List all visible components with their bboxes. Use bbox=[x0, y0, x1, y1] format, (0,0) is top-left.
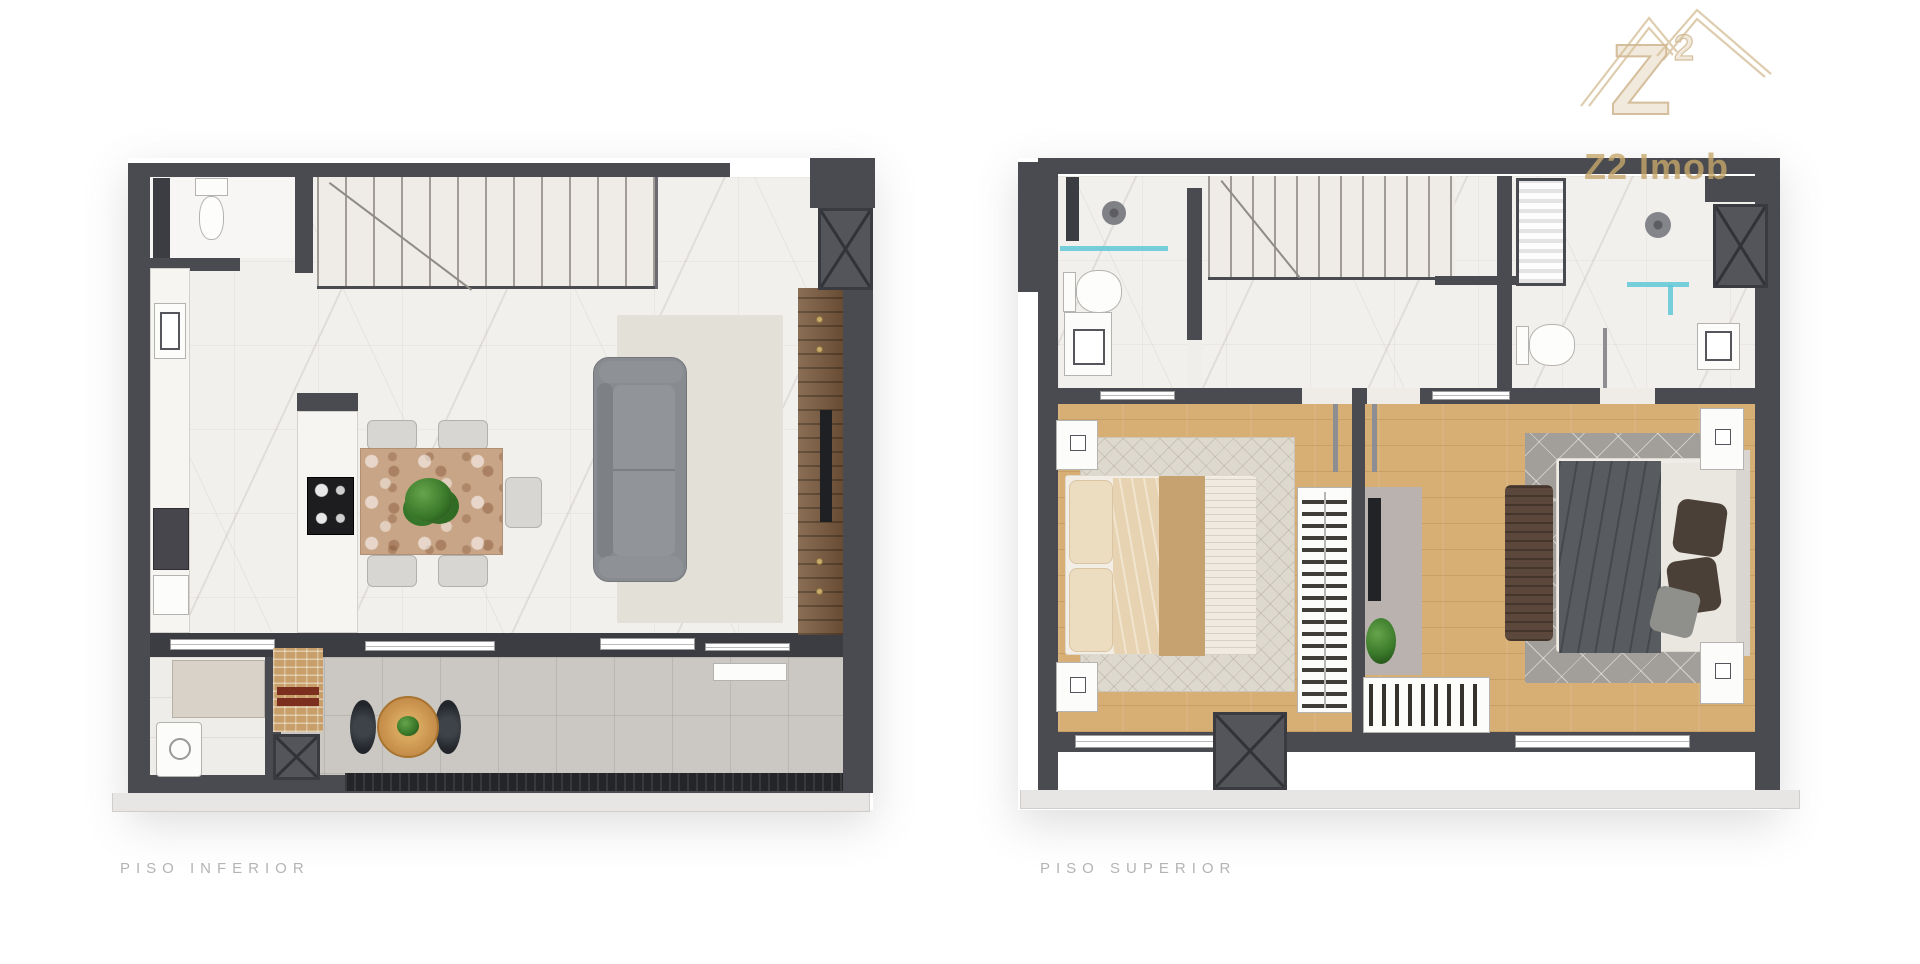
upper-left-jog-wall bbox=[1018, 162, 1040, 292]
logo-monogram: Z bbox=[1610, 40, 1671, 120]
floor-plans-image: PISO INFERIOR bbox=[0, 0, 1920, 964]
pocket-door bbox=[1432, 391, 1510, 400]
shower-drain bbox=[1645, 212, 1671, 238]
bathroom-sink-counter bbox=[1697, 323, 1740, 370]
bathroom-sink-counter bbox=[1064, 312, 1112, 376]
bed2-bench bbox=[1505, 485, 1553, 641]
shaft-x-icon bbox=[1216, 715, 1284, 787]
dresser-contents bbox=[1369, 684, 1484, 726]
bath1-door-opening bbox=[1187, 340, 1202, 388]
bedroom2-window bbox=[1515, 735, 1690, 748]
bedroom1-window bbox=[1075, 735, 1215, 748]
bedroom2-door-opening bbox=[1367, 388, 1420, 404]
nightstand-lamp bbox=[1070, 677, 1086, 693]
watermark-logo: Z 2 Z2 Imob bbox=[1560, 0, 1820, 200]
logo-monogram-exponent: 2 bbox=[1674, 34, 1694, 63]
bath2-door-opening bbox=[1600, 388, 1655, 404]
bed1-runner bbox=[1159, 476, 1205, 656]
nightstand bbox=[1056, 662, 1098, 712]
bed2-duvet bbox=[1559, 461, 1661, 653]
bedroom2-plant bbox=[1366, 618, 1396, 664]
bedroom2-door-leaf bbox=[1372, 404, 1377, 472]
toilet-tank bbox=[1063, 272, 1076, 312]
shower-glass-partition bbox=[1627, 282, 1689, 287]
sink-basin bbox=[1073, 329, 1105, 365]
shower-glass-partition bbox=[1060, 246, 1168, 251]
bedroom1-door-leaf bbox=[1333, 404, 1338, 472]
bed1 bbox=[1065, 475, 1255, 655]
shaft-x-icon bbox=[1716, 207, 1765, 285]
shower-head bbox=[1102, 201, 1126, 225]
closet-rail bbox=[1324, 492, 1326, 708]
shower-column bbox=[1066, 177, 1079, 241]
nightstand-lamp bbox=[1715, 663, 1731, 679]
bed2 bbox=[1556, 458, 1740, 652]
sink-basin bbox=[1705, 331, 1732, 361]
duct-shaft bbox=[1713, 204, 1768, 288]
closet bbox=[1297, 487, 1352, 713]
tv-screen bbox=[1368, 498, 1381, 601]
nightstand bbox=[1700, 408, 1744, 470]
nightstand-lamp bbox=[1715, 429, 1731, 445]
logo-wordmark: Z2 Imob bbox=[1584, 146, 1729, 188]
nightstand bbox=[1700, 642, 1744, 704]
upper-left-wall bbox=[1038, 158, 1058, 790]
shower-glass-partition bbox=[1668, 285, 1673, 315]
bedroom1-door-opening bbox=[1302, 388, 1352, 404]
bed1-pillow bbox=[1069, 480, 1113, 564]
upper-slab-edge bbox=[1020, 790, 1800, 809]
nightstand bbox=[1056, 420, 1098, 470]
toilet-bowl bbox=[1529, 324, 1575, 366]
bath2-door-leaf bbox=[1603, 328, 1607, 388]
bed1-pillow bbox=[1069, 568, 1113, 652]
bed2-pillow bbox=[1671, 498, 1728, 558]
shoe-dresser bbox=[1363, 677, 1490, 733]
bath2-left-wall bbox=[1497, 176, 1512, 400]
bed1-blanket bbox=[1113, 478, 1159, 654]
bed1-quilt bbox=[1205, 477, 1256, 655]
shower-enclosure bbox=[1516, 178, 1566, 286]
duct-shaft bbox=[1213, 712, 1287, 790]
bed2-headboard bbox=[1736, 450, 1750, 656]
toilet-bowl bbox=[1076, 270, 1122, 313]
toilet-tank bbox=[1516, 326, 1529, 365]
staircase-upper bbox=[1208, 176, 1455, 280]
nightstand-lamp bbox=[1070, 435, 1086, 451]
pocket-door bbox=[1100, 391, 1175, 400]
upper-floor-label: PISO SUPERIOR bbox=[1040, 860, 1236, 877]
